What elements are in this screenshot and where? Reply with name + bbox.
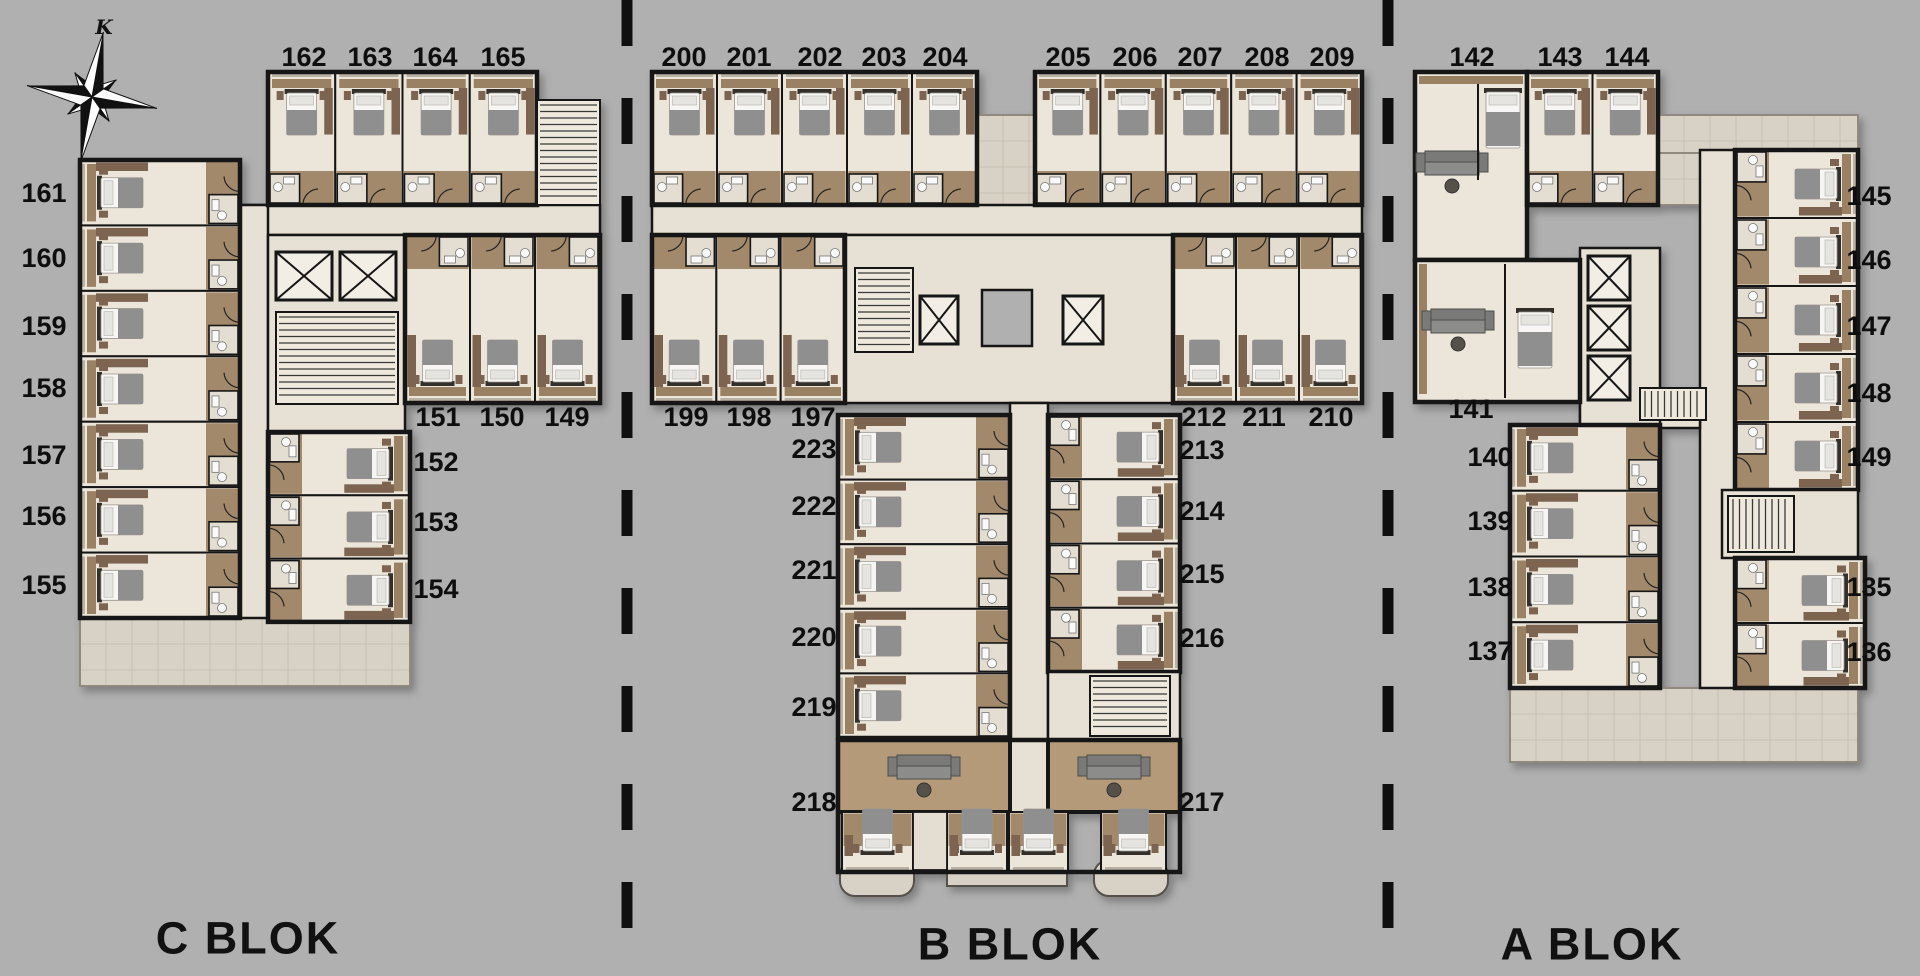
room-number-label: 148 (1846, 378, 1891, 408)
room (470, 72, 537, 205)
room (1510, 557, 1660, 623)
room-number-label: 208 (1244, 42, 1289, 72)
room (838, 544, 1010, 609)
room (1510, 425, 1660, 491)
room (80, 291, 240, 356)
corridor (652, 205, 1362, 235)
room-number-label: 207 (1177, 42, 1222, 72)
room-number-label: 216 (1179, 623, 1224, 653)
room-number-label: 156 (21, 501, 66, 531)
room-number-label: 155 (21, 570, 66, 600)
terrace (977, 115, 1035, 205)
room (80, 225, 240, 290)
room (1048, 544, 1180, 608)
room (335, 72, 402, 205)
room-number-label: 220 (791, 622, 836, 652)
room-number-label: 222 (791, 491, 836, 521)
room (1048, 479, 1180, 543)
room-number-label: 164 (412, 42, 457, 72)
room-number-label: 221 (791, 555, 836, 585)
room (1048, 415, 1180, 479)
room (1735, 286, 1858, 354)
room (838, 673, 1010, 738)
room-number-label: 160 (21, 243, 66, 273)
room-number-label: 198 (726, 402, 771, 432)
room (1009, 809, 1068, 872)
room (1173, 235, 1236, 403)
room-number-label: 209 (1309, 42, 1354, 72)
room (838, 480, 1010, 545)
room-number-label: 150 (479, 402, 524, 432)
room-number-label: 141 (1448, 394, 1493, 424)
room (268, 559, 410, 622)
room (1510, 491, 1660, 557)
room (838, 609, 1010, 674)
room (80, 553, 240, 618)
room (1166, 72, 1231, 205)
room (405, 235, 470, 403)
room-number-label: 146 (1846, 245, 1891, 275)
room (268, 72, 335, 205)
room-number-label: 159 (21, 311, 66, 341)
room (652, 235, 716, 403)
room-number-label: 152 (413, 447, 458, 477)
room-number-label: 218 (791, 787, 836, 817)
room (535, 235, 600, 403)
room-number-label: 214 (1179, 496, 1224, 526)
room-number-label: 144 (1604, 42, 1649, 72)
room-number-label: 145 (1846, 181, 1891, 211)
room (470, 235, 535, 403)
shaft-void (982, 290, 1032, 346)
corridor (1010, 403, 1048, 815)
room (1297, 72, 1362, 205)
floor-plan-canvas: K162163164165161160159158157156155151150… (0, 0, 1920, 976)
room (847, 72, 912, 205)
room-number-label: 135 (1846, 572, 1891, 602)
room-number-label: 137 (1467, 636, 1512, 666)
stairs (276, 312, 398, 404)
room-number-label: 217 (1179, 787, 1224, 817)
room-number-label: 140 (1467, 442, 1512, 472)
room-number-label: 206 (1112, 42, 1157, 72)
room-number-label: 142 (1449, 42, 1494, 72)
room (268, 495, 410, 558)
block-label: B BLOK (918, 919, 1103, 970)
terrace (1658, 115, 1858, 153)
room-number-label: 157 (21, 440, 66, 470)
block-label: A BLOK (1501, 919, 1684, 970)
room (1100, 72, 1165, 205)
room (912, 72, 977, 205)
room-number-label: 203 (861, 42, 906, 72)
room-number-label: 163 (347, 42, 392, 72)
room (1048, 608, 1180, 672)
stairs (855, 268, 913, 352)
room (268, 432, 410, 495)
room (1231, 72, 1296, 205)
floor-plan: K162163164165161160159158157156155151150… (0, 0, 1920, 976)
room (1735, 218, 1858, 286)
room (1735, 422, 1858, 490)
room-number-label: 201 (726, 42, 771, 72)
room (1735, 150, 1858, 218)
stairs (1640, 388, 1706, 420)
room-number-label: 223 (791, 434, 836, 464)
room (80, 160, 240, 225)
room (80, 356, 240, 421)
room (842, 809, 913, 872)
room-number-label: 219 (791, 692, 836, 722)
room-number-label: 149 (544, 402, 589, 432)
room-number-label: 138 (1467, 572, 1512, 602)
room (1527, 72, 1593, 205)
room-number-label: 158 (21, 373, 66, 403)
room (403, 72, 470, 205)
room (80, 422, 240, 487)
room-number-label: 161 (21, 178, 66, 208)
north-label: K (94, 15, 114, 39)
room-number-label: 215 (1179, 559, 1224, 589)
room (838, 415, 1010, 480)
room (717, 72, 782, 205)
room (1035, 72, 1100, 205)
room-number-label: 136 (1846, 637, 1891, 667)
room-number-label: 143 (1537, 42, 1582, 72)
bathroom (913, 812, 947, 870)
room-number-label: 211 (1242, 402, 1286, 432)
corridor (240, 205, 268, 618)
room-number-label: 147 (1846, 311, 1891, 341)
room-number-label: 210 (1308, 402, 1353, 432)
room (947, 809, 1007, 872)
room-number-label: 204 (922, 42, 967, 72)
stairs (1728, 496, 1794, 552)
room (80, 487, 240, 552)
room-number-label: 154 (413, 574, 458, 604)
room-number-label: 202 (797, 42, 842, 72)
terrace (80, 618, 410, 686)
room (1735, 354, 1858, 422)
room (781, 235, 845, 403)
room-number-label: 199 (663, 402, 708, 432)
room-number-label: 213 (1179, 435, 1224, 465)
room (1236, 235, 1299, 403)
room-number-label: 205 (1045, 42, 1090, 72)
room-number-label: 165 (480, 42, 525, 72)
room-number-label: 139 (1467, 506, 1512, 536)
room-number-label: 162 (281, 42, 326, 72)
room-number-label: 151 (415, 402, 460, 432)
room-number-label: 212 (1181, 402, 1226, 432)
room (1593, 72, 1659, 205)
room-number-label: 149 (1846, 442, 1891, 472)
room (716, 235, 780, 403)
room (782, 72, 847, 205)
room (652, 72, 717, 205)
room (1299, 235, 1362, 403)
room-number-label: 197 (790, 402, 835, 432)
room (1101, 809, 1166, 872)
room (1510, 622, 1660, 688)
room-number-label: 200 (661, 42, 706, 72)
block-label: C BLOK (156, 913, 341, 964)
room-number-label: 153 (413, 507, 458, 537)
